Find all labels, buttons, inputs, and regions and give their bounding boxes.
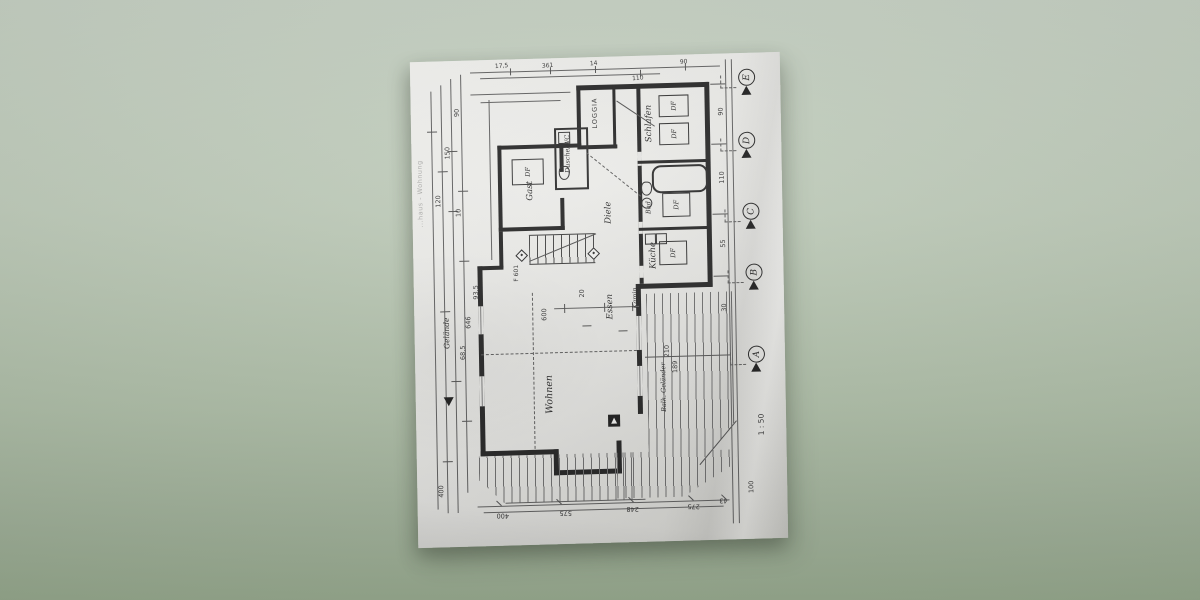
grid-marker-letter: E	[742, 73, 752, 80]
dimension-tick	[459, 261, 469, 262]
dimension-label: 43	[719, 497, 727, 505]
room-label-schlafen: Schlafen	[644, 105, 655, 143]
annotation-balkon-gelaender: Balk.-Geländer	[659, 363, 668, 412]
dimension-tick	[714, 275, 729, 276]
section-arrow	[741, 86, 751, 95]
dimension-tick	[619, 330, 628, 331]
roof-window-label: DF	[670, 101, 678, 111]
construction-line	[488, 100, 492, 260]
dimension-tick	[443, 461, 453, 462]
dimension-line	[554, 306, 639, 309]
grid-dash-elbow	[720, 75, 736, 88]
wall-segment	[499, 232, 504, 268]
grid-marker-e: E	[738, 69, 755, 86]
wall-segment	[497, 146, 502, 232]
door-opening	[639, 266, 643, 278]
dimension-label: 248	[626, 505, 639, 513]
dimension-label: 646	[464, 316, 472, 329]
axis-dashed-line	[481, 350, 637, 355]
grid-dash-elbow	[724, 209, 740, 222]
dimension-label: 600	[540, 308, 548, 321]
wall-segment	[636, 282, 712, 289]
photo-background: ...haus - Wohnung 90 150 120 10 93,5 646	[0, 0, 1200, 600]
wall-segment	[639, 226, 711, 231]
dimension-label: 17,5	[495, 62, 509, 70]
dimension-label: 68,5	[459, 345, 467, 360]
grid-marker-letter: C	[746, 207, 756, 214]
bathtub	[652, 164, 708, 194]
dimension-label: 10	[454, 209, 462, 218]
terrace-deck-hatch	[617, 449, 738, 498]
grid-marker-letter: B	[749, 268, 759, 275]
grid-marker-letter: A	[751, 350, 761, 357]
roof-window-label: DF	[524, 167, 532, 177]
stair-reference: F 601	[513, 265, 520, 282]
construction-line	[481, 100, 561, 103]
dimension-tick	[582, 325, 591, 326]
terrace-deck-hatch	[479, 452, 640, 504]
dimension-label: 400	[437, 485, 445, 498]
dimension-label: 575	[559, 509, 572, 517]
dimension-tick	[427, 131, 437, 132]
dimension-tick	[451, 381, 461, 382]
paper-sheet: ...haus - Wohnung 90 150 120 10 93,5 646	[410, 52, 788, 548]
roof-window-label: DF	[672, 200, 680, 210]
dimension-label: 110	[718, 171, 726, 184]
dimension-label: 400	[496, 512, 509, 520]
dimension-label: 275	[687, 502, 700, 510]
dimension-tick	[458, 191, 468, 192]
dimension-label: 150	[443, 147, 451, 160]
dimension-tick	[462, 421, 472, 422]
room-label-diele: Diele	[603, 201, 613, 224]
wall-segment	[576, 82, 708, 91]
dimension-label: 120	[434, 195, 442, 208]
dimension-line	[430, 92, 438, 510]
wall-segment	[560, 198, 565, 230]
roof-window-label: DF	[670, 129, 678, 139]
dimension-tick	[595, 66, 596, 73]
roof-window-label: DF	[669, 248, 677, 258]
room-label-dusche-wc: Dusche/WC	[563, 135, 572, 173]
dimension-line	[460, 75, 468, 493]
wall-segment	[638, 159, 710, 164]
roof-window-box: DF	[659, 122, 689, 145]
dimension-arrow	[444, 397, 454, 406]
scale-note: 1 : 50	[757, 414, 766, 436]
room-label-gast: Gast	[525, 181, 535, 201]
section-arrow	[746, 220, 756, 229]
terrain-label: Gelände	[442, 317, 452, 349]
door-pivot-symbol	[515, 249, 528, 262]
wall-segment	[612, 84, 616, 148]
dimension-label: 361	[542, 62, 554, 70]
grid-marker-d: D	[738, 132, 755, 149]
dimension-tick	[438, 171, 448, 172]
wc-fixture	[641, 181, 652, 195]
roof-window-box: DF	[659, 241, 687, 266]
floor-plan: ...haus - Wohnung 90 150 120 10 93,5 646	[410, 52, 788, 548]
room-label-kueche: Küche	[648, 242, 658, 269]
roof-window-box: DF	[658, 94, 688, 117]
axis-dashed-line	[532, 293, 536, 449]
door-swing-dashed	[586, 152, 641, 196]
dimension-label: 55	[719, 239, 727, 248]
dimension-tick	[440, 311, 450, 312]
section-arrow	[749, 281, 759, 290]
grid-dash-elbow	[730, 352, 746, 365]
grid-marker-b: B	[745, 263, 762, 280]
section-arrow	[741, 149, 751, 158]
wall-segment	[477, 266, 485, 456]
dimension-line	[450, 79, 459, 513]
dimension-label: 30	[720, 303, 728, 312]
dimension-tick	[564, 304, 565, 313]
section-arrow	[751, 362, 761, 371]
grid-dash-elbow	[720, 138, 736, 151]
grid-marker-letter: D	[742, 136, 752, 143]
dimension-label: 90	[717, 107, 725, 116]
dimension-tick	[510, 68, 511, 75]
dimension-label: 189	[671, 361, 679, 374]
dimension-label: 90	[453, 109, 461, 118]
door-symbol	[608, 414, 620, 426]
dimension-label: 100	[747, 480, 755, 493]
edge-note: ...haus - Wohnung	[416, 160, 425, 228]
dimension-label: 110	[632, 74, 644, 82]
roof-window-box: DF	[662, 192, 690, 217]
dimension-label: 90	[680, 58, 688, 66]
room-label-loggia: LOGGIA	[590, 97, 599, 128]
grid-marker-c: C	[742, 202, 759, 219]
dimension-label: 20	[578, 289, 586, 298]
grid-dash-elbow	[727, 270, 743, 283]
room-label-wohnen: Wohnen	[544, 375, 556, 414]
wall-segment	[499, 226, 565, 232]
construction-line	[470, 92, 570, 96]
room-label-essen: Essen	[605, 294, 615, 320]
grid-marker-a: A	[748, 345, 765, 362]
room-label-bad: Bad	[644, 201, 652, 214]
annotation-kamin: Kamin	[631, 287, 639, 308]
dimension-label: 14	[590, 60, 598, 68]
